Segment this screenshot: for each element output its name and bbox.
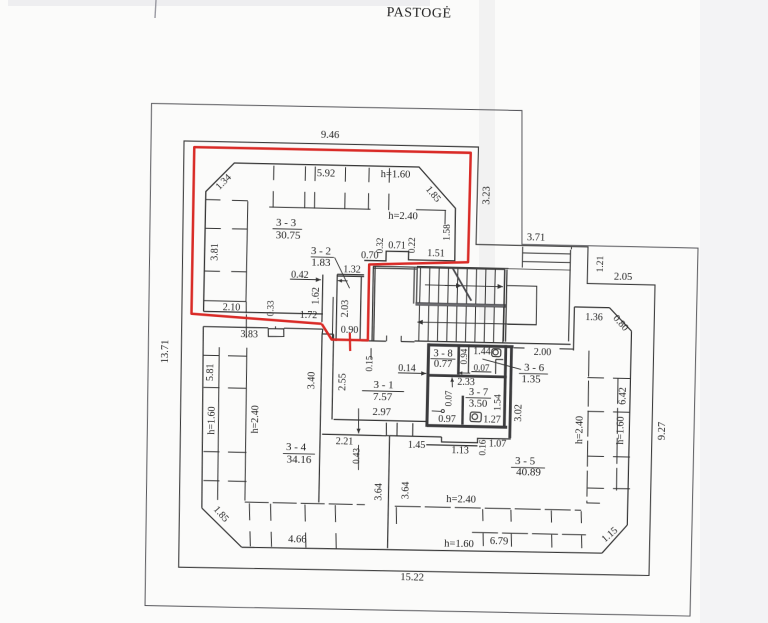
svg-text:0.07: 0.07 — [443, 390, 453, 406]
svg-text:2.33: 2.33 — [457, 377, 475, 388]
svg-text:3.81: 3.81 — [210, 243, 221, 261]
svg-text:3.71: 3.71 — [527, 232, 546, 243]
svg-text:1.62: 1.62 — [311, 287, 322, 305]
svg-text:1.32: 1.32 — [343, 264, 361, 275]
svg-text:1.51: 1.51 — [427, 248, 445, 259]
svg-text:7.57: 7.57 — [373, 391, 393, 403]
svg-text:1.07: 1.07 — [489, 438, 507, 449]
svg-text:4.66: 4.66 — [288, 534, 307, 545]
svg-text:3 - 8: 3 - 8 — [433, 348, 452, 359]
svg-text:9.46: 9.46 — [321, 130, 340, 141]
svg-text:2.21: 2.21 — [336, 436, 354, 447]
svg-text:PASTOGĖ: PASTOGĖ — [386, 4, 451, 21]
svg-text:34.16: 34.16 — [287, 453, 313, 466]
svg-text:h=2.40: h=2.40 — [388, 211, 418, 223]
svg-text:3 - 3: 3 - 3 — [276, 217, 297, 229]
svg-text:9.27: 9.27 — [657, 422, 668, 441]
svg-text:0.07: 0.07 — [474, 362, 490, 372]
svg-text:2.55: 2.55 — [337, 373, 348, 391]
svg-text:3.50: 3.50 — [469, 399, 488, 410]
svg-text:3.64: 3.64 — [400, 482, 411, 500]
svg-text:1.72: 1.72 — [300, 310, 318, 321]
svg-text:3.64: 3.64 — [373, 483, 384, 501]
svg-text:3 - 7: 3 - 7 — [469, 387, 488, 398]
svg-text:2.03: 2.03 — [340, 300, 351, 318]
svg-text:3.83: 3.83 — [240, 329, 258, 340]
svg-text:1.21: 1.21 — [596, 255, 606, 272]
svg-text:1.13: 1.13 — [451, 445, 469, 456]
svg-text:1.45: 1.45 — [408, 440, 426, 451]
svg-text:2.10: 2.10 — [223, 302, 241, 313]
svg-text:0.77: 0.77 — [434, 359, 453, 370]
svg-text:1.35: 1.35 — [521, 373, 541, 385]
svg-text:40.89: 40.89 — [516, 466, 542, 479]
svg-text:15.22: 15.22 — [400, 572, 424, 584]
svg-text:0.70: 0.70 — [361, 250, 379, 261]
svg-text:30.75: 30.75 — [276, 229, 302, 242]
svg-text:1.27: 1.27 — [483, 414, 501, 425]
svg-text:3 - 1: 3 - 1 — [373, 379, 393, 391]
svg-text:1.58: 1.58 — [443, 224, 453, 241]
svg-text:h=2.40: h=2.40 — [250, 405, 262, 433]
svg-text:0.94: 0.94 — [459, 348, 469, 364]
svg-text:6.79: 6.79 — [490, 536, 509, 547]
svg-text:h=1.60: h=1.60 — [444, 539, 474, 551]
svg-text:2.05: 2.05 — [614, 272, 633, 283]
svg-text:2.97: 2.97 — [372, 407, 391, 418]
svg-text:h=2.40: h=2.40 — [446, 494, 476, 506]
svg-text:h=1.60: h=1.60 — [206, 406, 218, 434]
svg-text:1.36: 1.36 — [585, 312, 603, 323]
svg-text:3.02: 3.02 — [513, 404, 524, 422]
svg-text:0.22: 0.22 — [407, 237, 417, 253]
svg-text:2.00: 2.00 — [534, 347, 552, 358]
svg-text:3.23: 3.23 — [481, 186, 492, 205]
svg-text:3.40: 3.40 — [306, 372, 317, 390]
svg-text:0.15: 0.15 — [364, 355, 374, 371]
svg-text:3 - 4: 3 - 4 — [286, 441, 307, 453]
svg-text:13.71: 13.71 — [160, 340, 172, 364]
svg-text:0.14: 0.14 — [398, 363, 416, 374]
svg-text:1.44: 1.44 — [473, 346, 491, 357]
svg-text:6.42: 6.42 — [617, 387, 628, 405]
svg-text:1.54: 1.54 — [494, 394, 504, 411]
svg-text:0.16: 0.16 — [477, 439, 487, 455]
svg-text:0.43: 0.43 — [351, 448, 361, 464]
svg-text:0.71: 0.71 — [388, 240, 406, 251]
svg-text:h=2.40: h=2.40 — [574, 416, 586, 444]
svg-text:0.97: 0.97 — [438, 414, 456, 425]
svg-text:5.81: 5.81 — [205, 363, 216, 381]
svg-text:3 - 6: 3 - 6 — [524, 362, 545, 374]
svg-text:h=1.60: h=1.60 — [381, 169, 411, 181]
svg-text:5.92: 5.92 — [317, 168, 336, 179]
svg-text:0.33: 0.33 — [265, 300, 275, 316]
svg-text:1.83: 1.83 — [311, 256, 331, 268]
